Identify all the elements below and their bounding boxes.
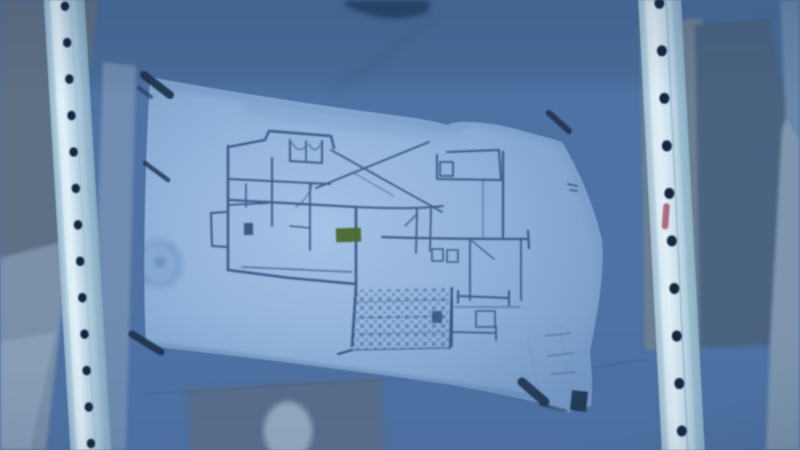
dark-label-square xyxy=(570,390,588,412)
construction-site-photo xyxy=(0,0,800,450)
highlight-green-room xyxy=(336,228,361,243)
hatched-area xyxy=(338,288,452,354)
photo-canvas xyxy=(0,0,800,450)
